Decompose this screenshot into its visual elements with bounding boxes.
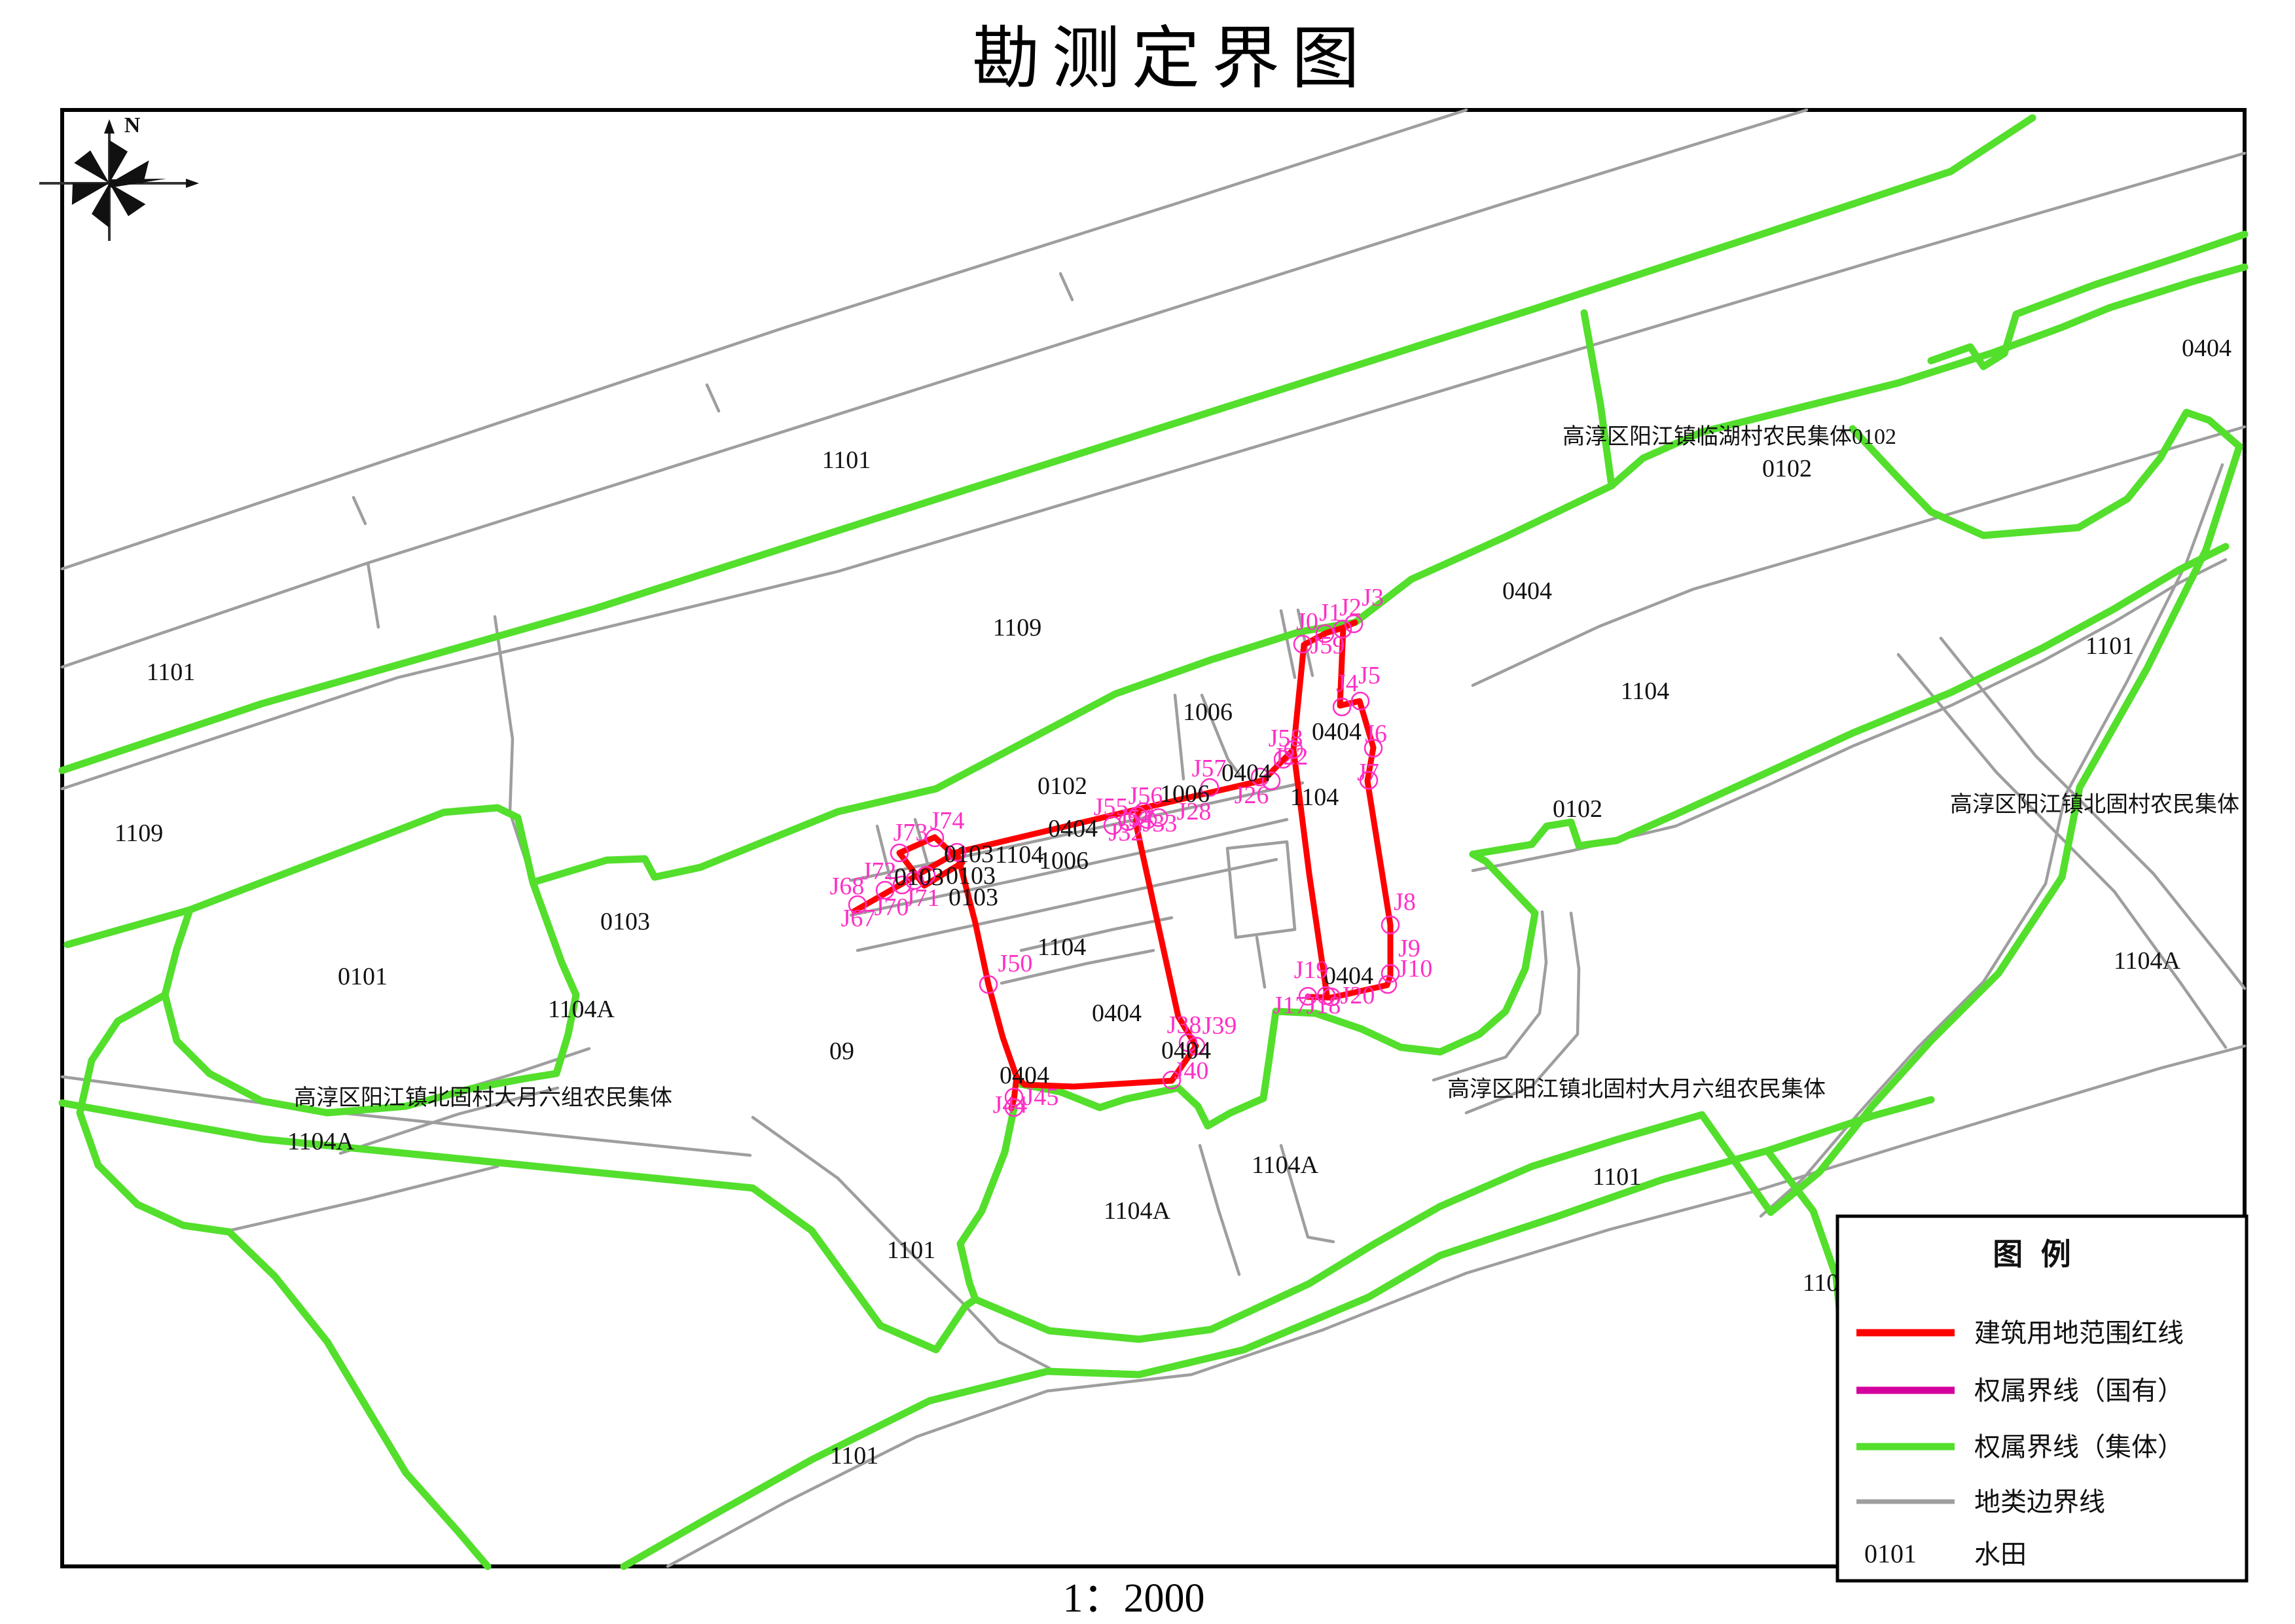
collective-boundary-line <box>1852 412 2239 535</box>
boundary-point-label: J38 <box>1167 1011 1202 1039</box>
parcel-code-label: 0404 <box>1092 1000 1142 1027</box>
legend-code: 0101 <box>1864 1539 1917 1568</box>
village-collective-label: 高淳区阳江镇北固村大月六组农民集体 <box>294 1085 672 1110</box>
parcel-code-label: 0102 <box>1762 455 1812 482</box>
parcel-code-label: 0102 <box>1553 795 1602 823</box>
parcel-code-label: 1104A <box>1104 1197 1171 1225</box>
collective-boundary-line <box>1771 446 2239 1212</box>
land-type-boundary-line <box>368 563 378 627</box>
land-type-boundary-line <box>62 110 1466 569</box>
boundary-point-label: J59 <box>1310 632 1345 659</box>
boundary-point-label: J19 <box>1294 956 1329 984</box>
boundary-point-label: J68 <box>830 873 865 900</box>
land-type-boundary-line <box>1257 937 1265 987</box>
parcel-code-label: 0103 <box>949 884 998 911</box>
parcel-code-label: 1109 <box>993 614 1042 641</box>
boundary-point-label: J44 <box>993 1091 1028 1119</box>
collective-boundary-line <box>960 1108 1014 1299</box>
boundary-point-label: J50 <box>998 950 1033 977</box>
boundary-point-label: J28 <box>1177 798 1212 825</box>
boundary-point-label: J72 <box>862 857 897 885</box>
land-type-boundary-line <box>1761 465 2222 1216</box>
boundary-point-label: J5 <box>1358 662 1381 689</box>
parcel-code-label: 1104A <box>548 996 615 1023</box>
survey-map: 1101110111091109110104040102040411040102… <box>0 0 2295 1624</box>
collective-boundary-line <box>1584 313 1612 486</box>
parcel-code-label: 1109 <box>115 820 164 847</box>
boundary-point-label: J1 <box>1319 599 1341 626</box>
boundary-point-label: J4 <box>1336 670 1358 697</box>
parcel-code-label: 1104A <box>287 1128 355 1155</box>
boundary-point-label: J73 <box>894 819 928 846</box>
parcel-code-label: 1006 <box>1183 698 1233 726</box>
land-type-boundary-line <box>62 153 2245 789</box>
boundary-point-label: J18 <box>1307 992 1341 1019</box>
parcel-code-label: 1101 <box>887 1236 936 1264</box>
scale-text: 1：2000 <box>1062 1576 1204 1621</box>
boundary-point-label: J6 <box>1365 720 1387 748</box>
legend-label: 地类边界线 <box>1974 1487 2105 1517</box>
parcel-code-label: 1101 <box>147 659 196 686</box>
village-collective-label: 高淳区阳江镇临湖村农民集体0102 <box>1563 424 1896 449</box>
boundary-point-label: J17 <box>1273 992 1308 1019</box>
legend-label: 权属界线（国有） <box>1974 1376 2184 1405</box>
parcel-code-label: 1104 <box>1290 784 1339 811</box>
boundary-point-label: J39 <box>1202 1012 1237 1039</box>
compass-north-label: N <box>124 113 141 137</box>
legend-label: 建筑用地范围红线 <box>1974 1318 2184 1348</box>
boundary-point-label: J7 <box>1357 759 1379 786</box>
land-type-boundary-line <box>353 497 365 524</box>
boundary-point-label: J3 <box>1362 584 1384 611</box>
parcel-code-label: 0101 <box>338 963 388 990</box>
boundary-point-label: J74 <box>930 807 965 835</box>
village-collective-label: 高淳区阳江镇北固村农民集体 <box>1950 792 2239 817</box>
parcel-code-label: 0404 <box>2182 334 2232 362</box>
parcel-code-label: 1101 <box>1593 1163 1642 1191</box>
legend-title: 图 例 <box>1993 1238 2076 1271</box>
parcel-code-label: 1104 <box>995 841 1044 869</box>
village-collective-label: 高淳区阳江镇北固村大月六组农民集体 <box>1447 1077 1826 1102</box>
boundary-point-label: J22 <box>1274 743 1309 770</box>
land-type-boundary-line <box>1060 274 1072 300</box>
collective-boundary-line <box>67 267 2245 945</box>
parcel-code-label: 0404 <box>1312 718 1362 746</box>
page-title: 勘测定界图 <box>972 22 1371 97</box>
compass-wedge-icon <box>109 183 145 216</box>
parcel-code-label: 09 <box>829 1038 854 1065</box>
parcel-code-label: 1104A <box>2114 947 2181 975</box>
parcel-code-label: 1104A <box>1252 1151 1319 1179</box>
parcel-code-label: 0103 <box>600 908 650 935</box>
collective-boundary-line <box>80 995 488 1566</box>
boundary-point-label: J54 <box>1119 804 1153 832</box>
land-type-boundary-line <box>1227 842 1295 937</box>
land-type-boundary-line <box>1898 655 2226 1047</box>
compass-east-arrow-icon <box>186 179 199 188</box>
boundary-point-label: J70 <box>875 893 909 921</box>
legend-label: 权属界线（集体） <box>1974 1432 2184 1462</box>
boundary-point-label: J20 <box>1341 982 1375 1009</box>
parcel-code-label: 1006 <box>1039 847 1089 875</box>
boundary-point-label: J10 <box>1398 955 1433 983</box>
survey-demarcation-sheet: 1101110111091109110104040102040411040102… <box>0 0 2295 1624</box>
legend: 图 例 建筑用地范围红线权属界线（国有）权属界线（集体）地类边界线0101水田 <box>1837 1216 2247 1581</box>
boundary-point-label: J40 <box>1174 1057 1209 1085</box>
collective-boundary-line <box>975 1115 1771 1339</box>
boundary-point-label: J45 <box>1024 1083 1059 1111</box>
compass-north-arrow-icon <box>104 119 115 134</box>
legend-label: 水田 <box>1974 1540 2027 1569</box>
parcel-code-label: 0102 <box>1038 772 1087 800</box>
parcel-code-label: 1104 <box>1038 933 1087 961</box>
compass-wedge-icon <box>74 151 109 183</box>
parcel-code-label: 1101 <box>2086 632 2135 660</box>
boundary-point-label: J57 <box>1192 755 1227 782</box>
parcel-code-label: 1101 <box>822 446 871 474</box>
boundary-point-label: J8 <box>1394 888 1416 916</box>
parcel-code-label: 1104 <box>1621 677 1670 705</box>
land-type-boundary-line <box>229 1166 497 1231</box>
land-type-boundary-line <box>1281 611 1295 677</box>
parcel-code-label: 1101 <box>830 1442 879 1470</box>
parcel-code-label: 0404 <box>1502 577 1552 605</box>
collective-boundary-line <box>165 882 576 1113</box>
land-type-boundary-line <box>707 385 719 411</box>
parcel-code-label: 0404 <box>1048 815 1098 842</box>
boundary-point-label: J26 <box>1235 782 1269 809</box>
boundary-point-label: J71 <box>905 884 940 912</box>
boundary-point-label: J2 <box>1339 594 1362 621</box>
boundary-point-label: J67 <box>841 905 876 932</box>
land-type-boundary-line <box>1200 1146 1239 1274</box>
